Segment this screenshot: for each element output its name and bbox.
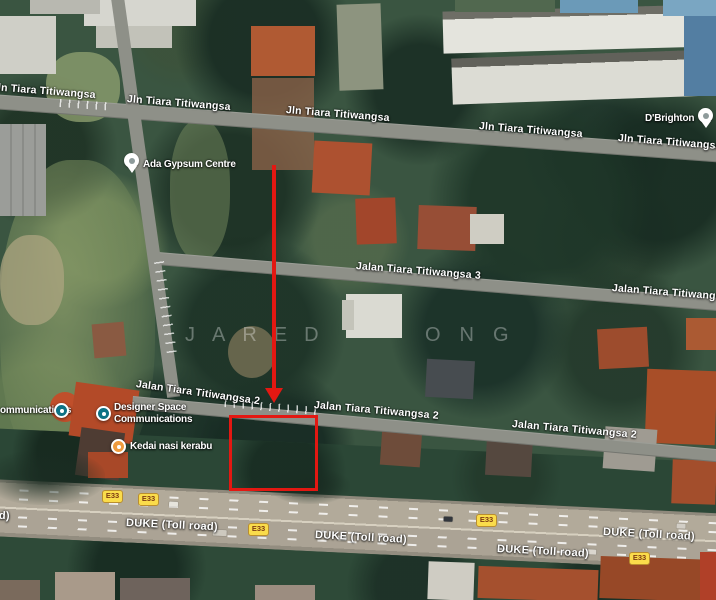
vehicle bbox=[444, 516, 453, 521]
townhouse-row bbox=[451, 49, 716, 104]
route-shield-e33: E33 bbox=[102, 490, 123, 503]
poi-marker-kedai-nasi-kerabu[interactable] bbox=[111, 439, 126, 454]
watermark: ONG bbox=[425, 324, 528, 347]
sports-court bbox=[251, 26, 315, 76]
tree-overhang bbox=[0, 450, 105, 505]
building-roof bbox=[84, 0, 196, 26]
poi-label-ada-gypsum[interactable]: Ada Gypsum Centre bbox=[143, 159, 236, 170]
grass-patch bbox=[170, 120, 230, 260]
vehicle bbox=[169, 501, 178, 506]
house-roof bbox=[0, 580, 40, 600]
building-roof bbox=[346, 294, 402, 338]
house-roof bbox=[671, 459, 716, 505]
poi-pin-ada-gypsum[interactable] bbox=[124, 153, 139, 168]
watermark: JARED bbox=[185, 324, 336, 347]
house-roof bbox=[312, 141, 373, 196]
building-roof bbox=[96, 26, 172, 48]
poi-marker-designer-space[interactable] bbox=[96, 406, 111, 421]
route-shield-e33: E33 bbox=[138, 493, 159, 506]
building-roof bbox=[30, 0, 100, 14]
route-shield-e33: E33 bbox=[629, 552, 650, 565]
warehouse-roof bbox=[0, 124, 46, 216]
annotation-arrow-head bbox=[265, 388, 283, 403]
house-roof bbox=[55, 572, 115, 600]
house-roof bbox=[255, 585, 315, 600]
annotation-arrow-line bbox=[272, 165, 276, 391]
house-roof bbox=[470, 214, 504, 244]
swimming-pool bbox=[560, 0, 638, 13]
house-roof bbox=[477, 566, 598, 600]
poi-marker-communications[interactable] bbox=[54, 403, 69, 418]
house-roof bbox=[700, 552, 716, 600]
building-roof bbox=[425, 359, 475, 399]
house-roof bbox=[120, 578, 190, 600]
driveway bbox=[337, 3, 384, 90]
route-shield-e33: E33 bbox=[248, 523, 269, 536]
poi-label-d-brighton[interactable]: D'Brighton bbox=[645, 113, 694, 124]
building-roof bbox=[0, 16, 56, 74]
house-roof bbox=[686, 318, 716, 350]
house-roof bbox=[427, 561, 474, 600]
building-roof bbox=[342, 300, 354, 330]
swimming-pool bbox=[663, 0, 716, 16]
poi-label-designer-space-line2[interactable]: Communications bbox=[114, 414, 192, 425]
satellite-map[interactable]: JARED ONG Jln Tiara Titiwangsa Jln Tiara… bbox=[0, 0, 716, 600]
poi-label-kedai-nasi-kerabu[interactable]: Kedai nasi kerabu bbox=[130, 441, 212, 452]
house-roof bbox=[597, 327, 649, 370]
roof-garden bbox=[455, 0, 555, 12]
house-roof bbox=[92, 322, 127, 359]
swimming-pool bbox=[684, 16, 716, 96]
house-roof bbox=[599, 556, 716, 600]
poi-label-designer-space-line1[interactable]: Designer Space bbox=[114, 402, 186, 413]
bare-ground bbox=[0, 235, 64, 325]
annotation-highlight-rectangle bbox=[229, 415, 318, 491]
poi-pin-d-brighton[interactable] bbox=[698, 108, 713, 123]
route-shield-e33: E33 bbox=[476, 514, 497, 527]
house-roof bbox=[417, 205, 477, 251]
house-roof bbox=[355, 197, 397, 244]
vehicle bbox=[676, 523, 685, 528]
